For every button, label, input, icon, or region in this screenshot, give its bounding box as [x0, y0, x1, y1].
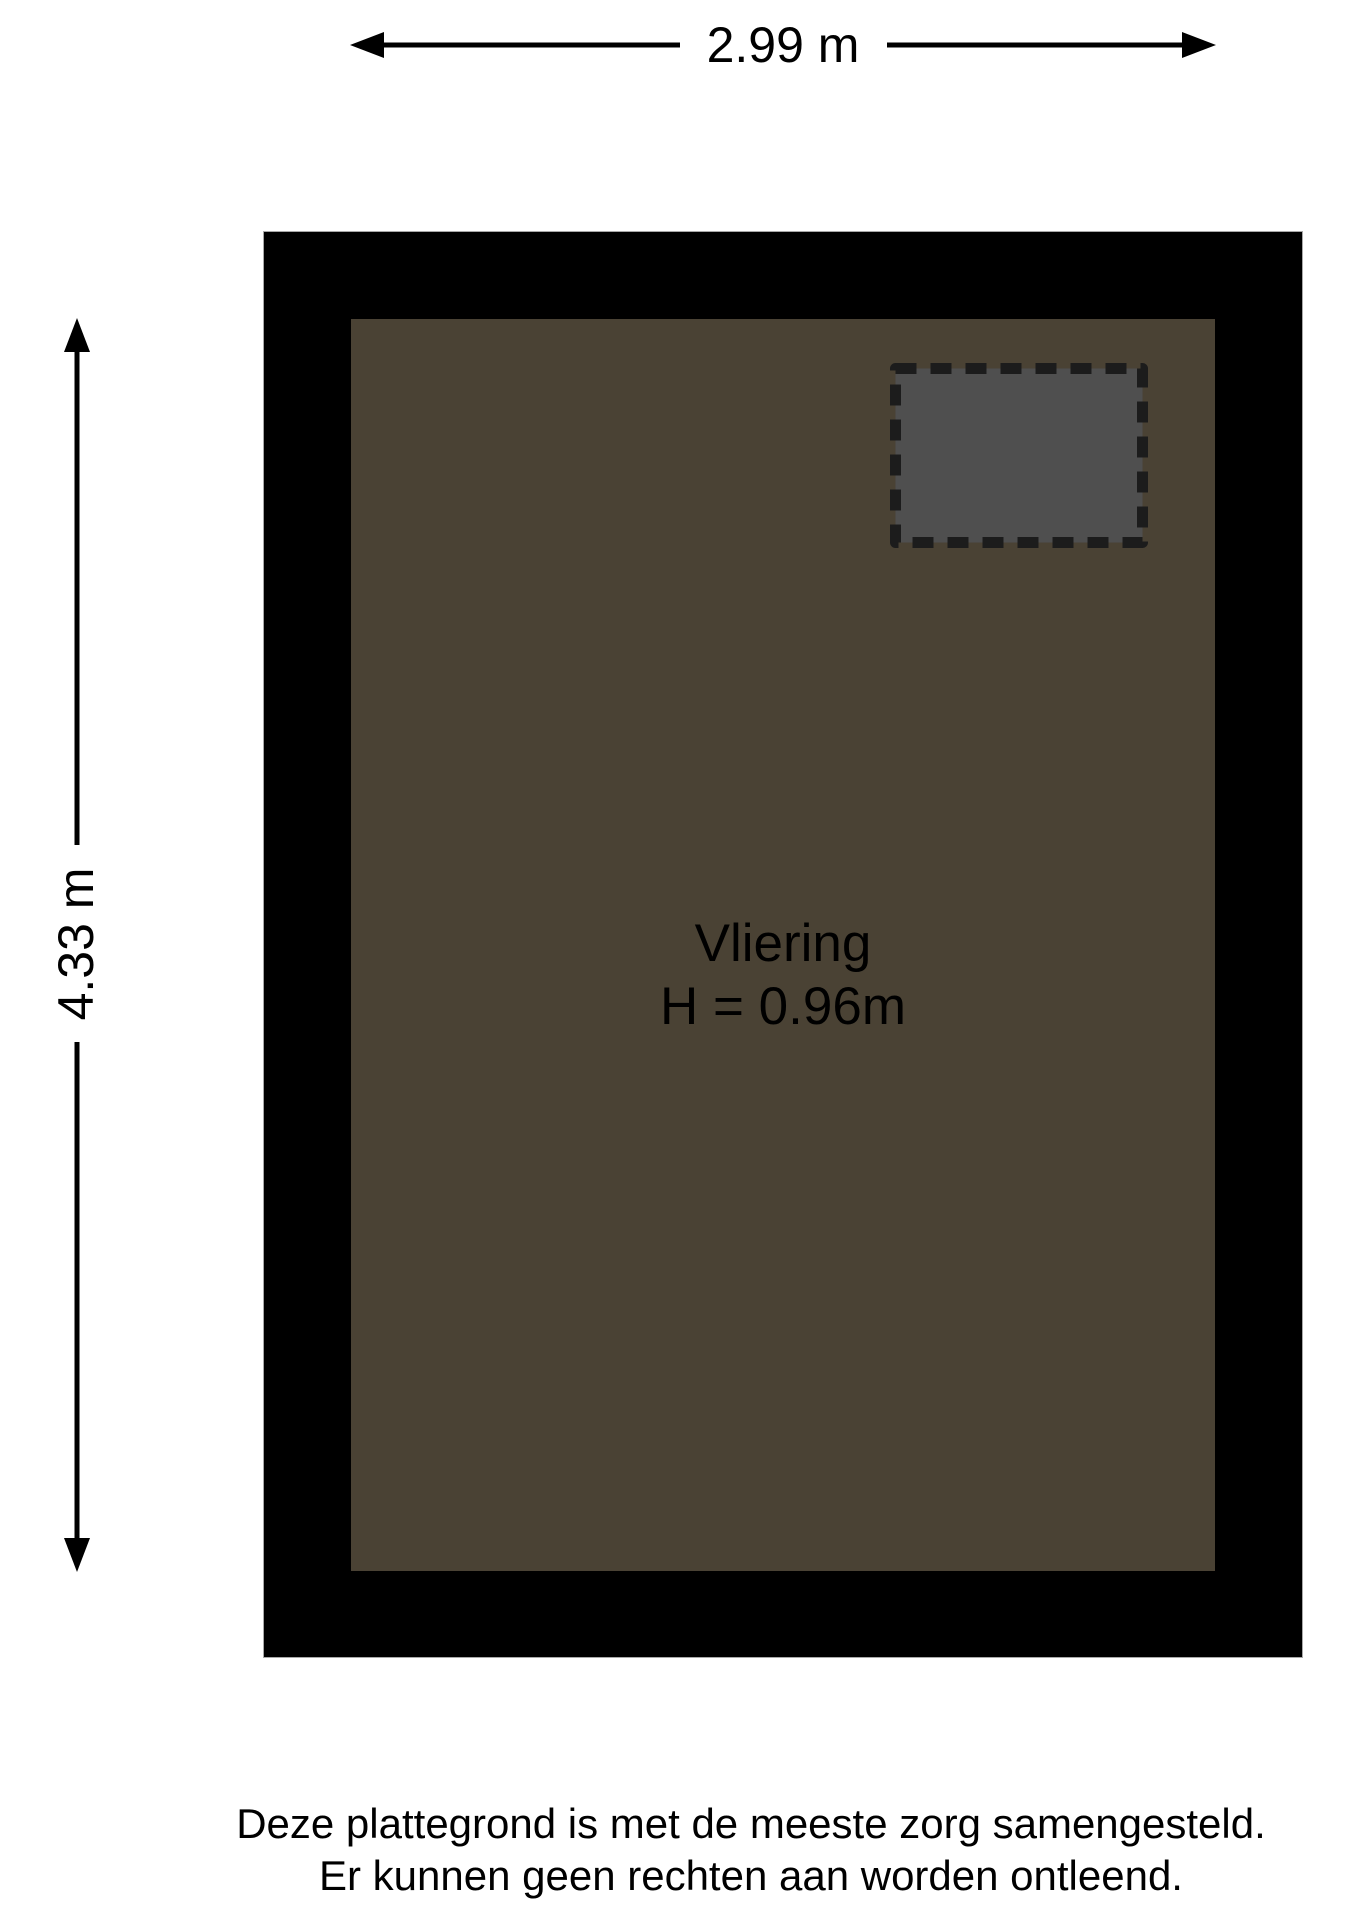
room-height-label: H = 0.96m	[660, 975, 906, 1038]
floorplan-canvas: 2.99 m 4.33 m Vliering H = 0.96m Deze pl…	[0, 0, 1358, 1920]
height-dimension-label: 4.33 m	[47, 868, 105, 1021]
height-arrowhead-bottom-icon	[64, 1538, 90, 1572]
height-arrowhead-top-icon	[64, 318, 90, 352]
disclaimer-line2: Er kunnen geen rechten aan worden ontlee…	[236, 1850, 1266, 1902]
disclaimer-line1: Deze plattegrond is met de meeste zorg s…	[236, 1798, 1266, 1850]
disclaimer-text: Deze plattegrond is met de meeste zorg s…	[236, 1798, 1266, 1902]
width-arrowhead-right-icon	[1182, 32, 1216, 58]
width-dimension-label: 2.99 m	[707, 16, 860, 74]
room-label: Vliering H = 0.96m	[660, 912, 906, 1038]
width-arrowhead-left-icon	[350, 32, 384, 58]
room-name-label: Vliering	[660, 912, 906, 975]
